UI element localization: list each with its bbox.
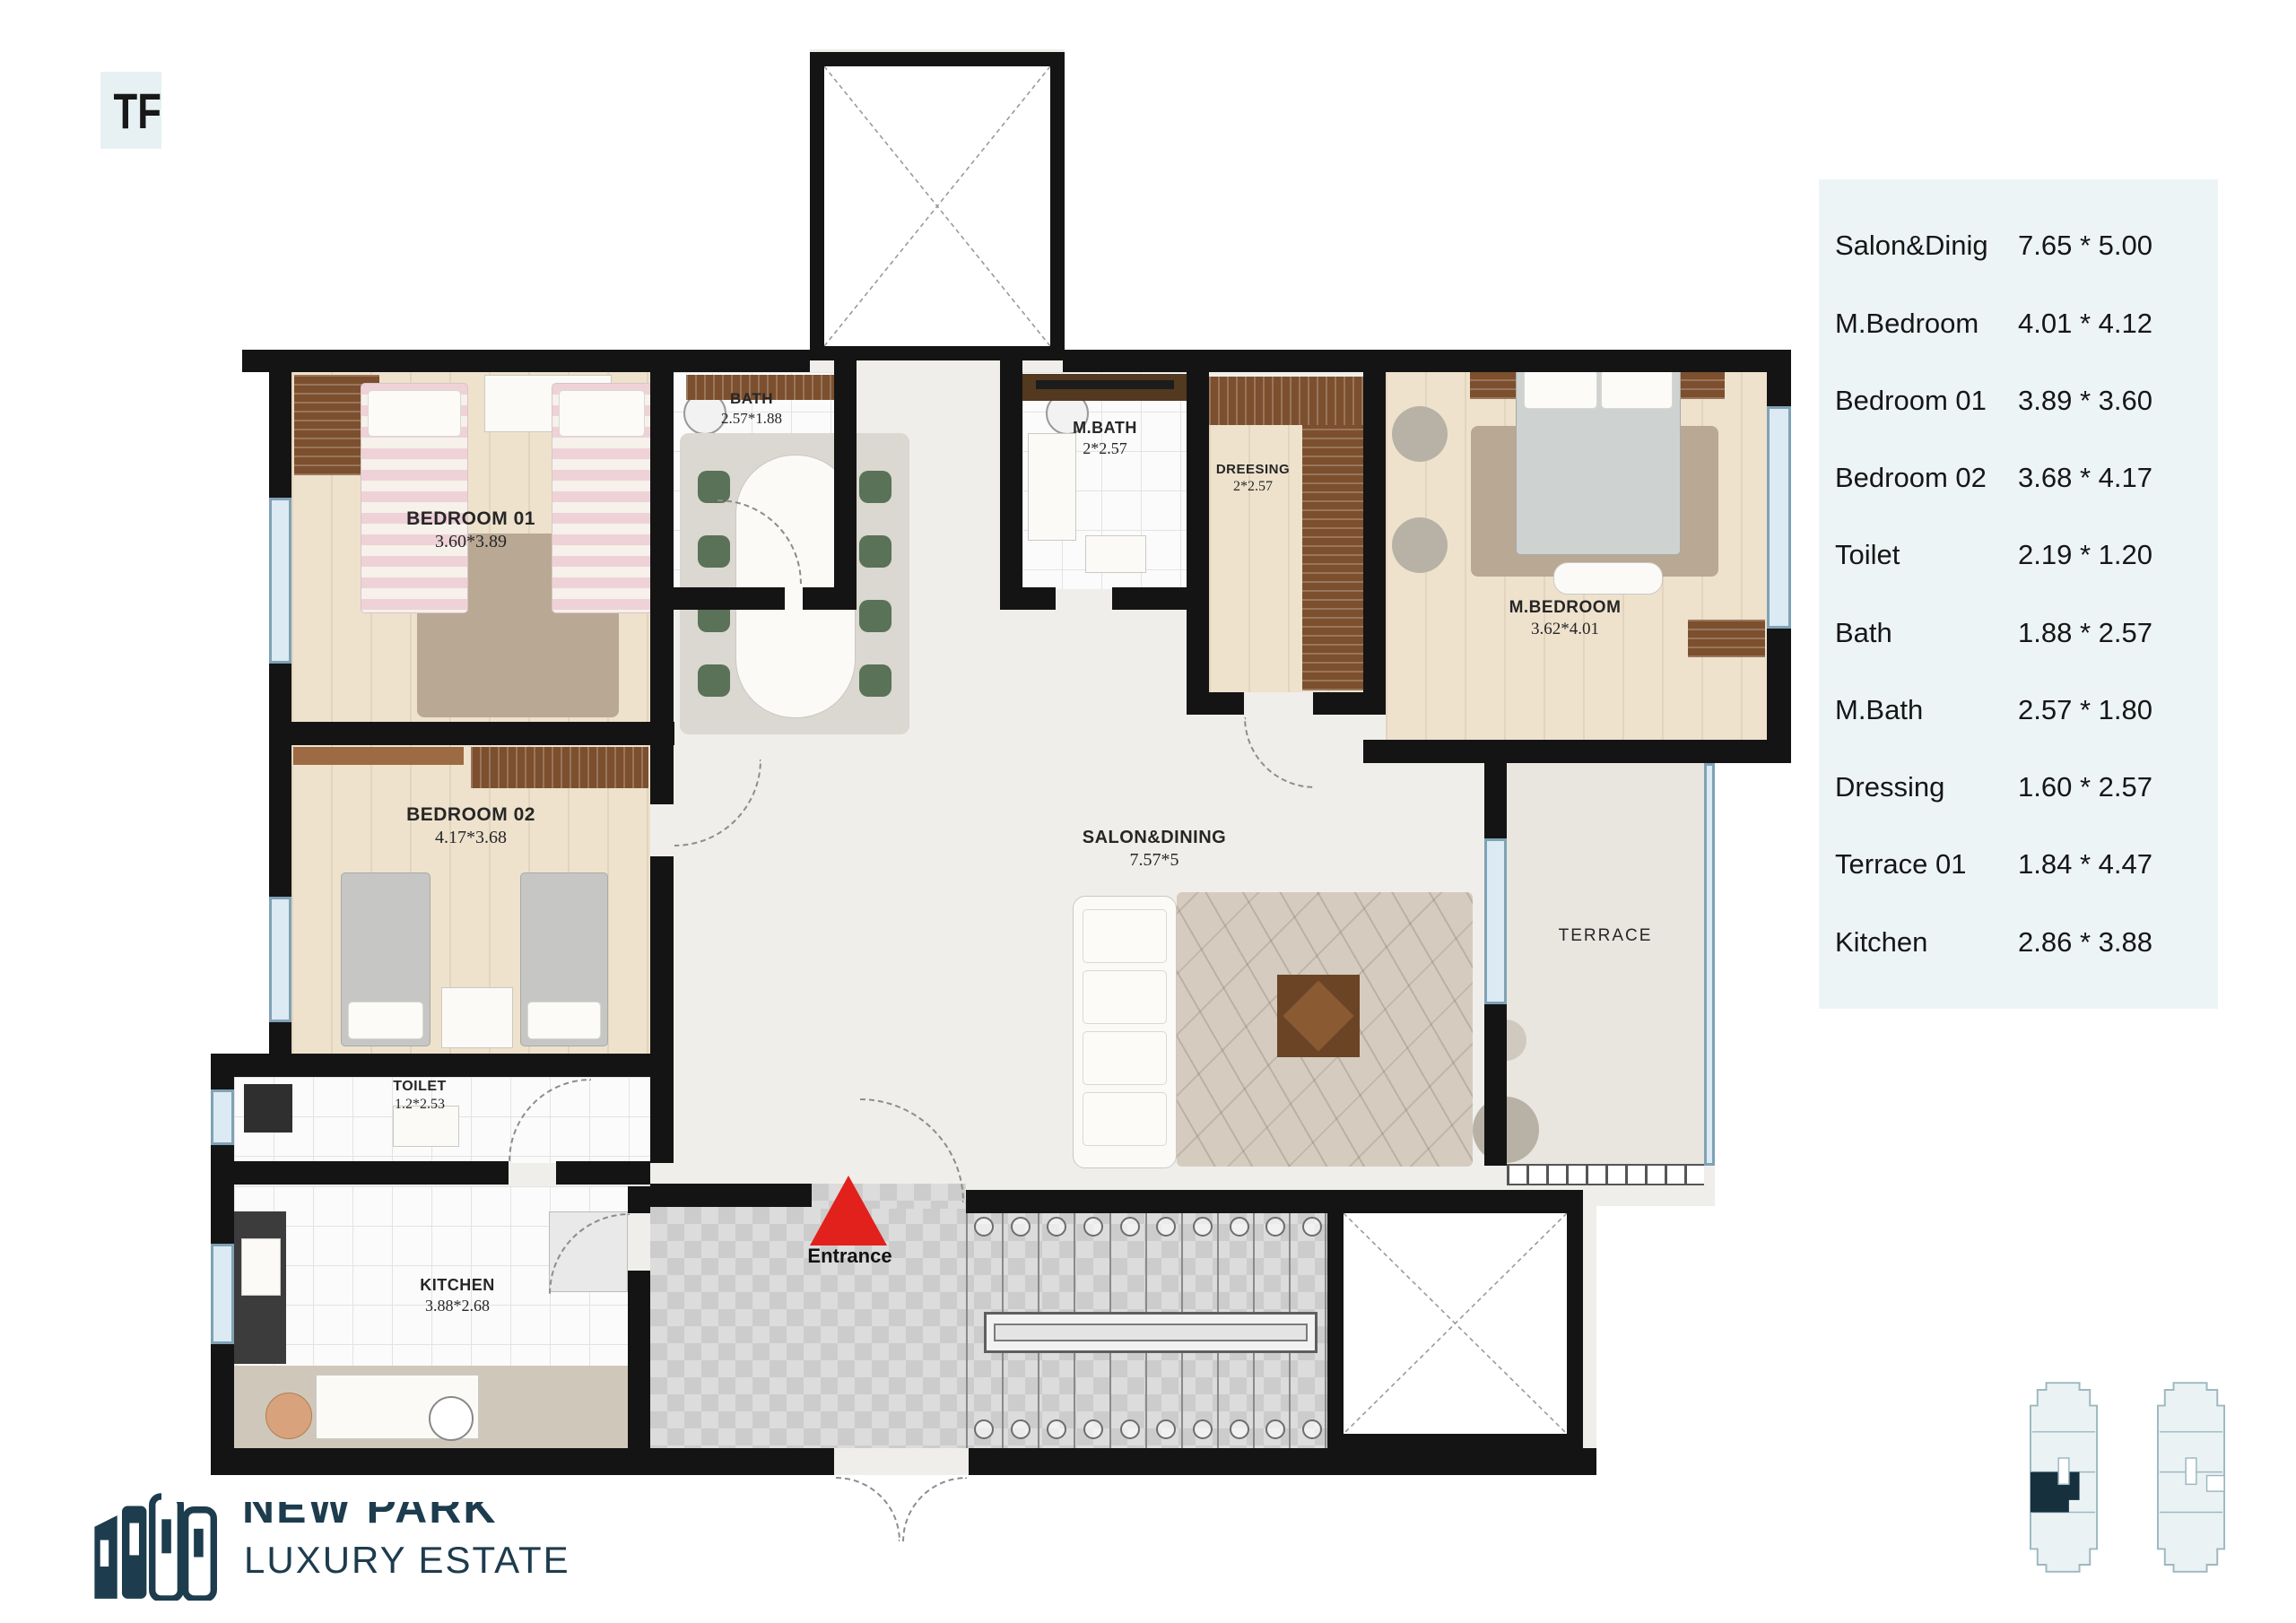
wall [211,1161,509,1185]
step-dot [1156,1217,1176,1237]
step-dot [1047,1217,1066,1237]
entrance-arrow-icon [810,1176,887,1245]
bed-pillow [1601,369,1673,409]
elevator-shaft [1327,1197,1583,1450]
step-dot [1083,1217,1103,1237]
room-name: TOILET [339,1079,500,1095]
room-name: BEDROOM 01 [336,508,605,530]
room-label-mbedroom: M.BEDROOM 3.62*4.01 [1466,598,1664,639]
bed [361,383,468,613]
dimension-row: Dressing1.60 * 2.57 [1819,771,2218,803]
room-size: 7.57*5 [1047,850,1262,871]
room-terrace-floor [1507,763,1704,1166]
dim-label: Bedroom 01 [1835,385,2018,417]
window [1704,763,1715,1166]
step-dot [974,1419,994,1439]
tv [1036,380,1174,389]
dim-value: 4.01 * 4.12 [2018,308,2202,340]
step-dot [1120,1217,1140,1237]
exterior-area [1596,1206,1803,1475]
dimension-row: Salon&Dinig7.65 * 5.00 [1819,230,2218,262]
dimension-row: Bedroom 023.68 * 4.17 [1819,462,2218,494]
step-dot [1120,1419,1140,1439]
armchair [1392,406,1448,462]
dining-chair [698,664,730,697]
dimension-row: M.Bath2.57 * 1.80 [1819,694,2218,726]
dimension-row: Bedroom 013.89 * 3.60 [1819,385,2218,417]
dim-label: Toilet [1835,539,2018,571]
wall [242,350,810,372]
step-dot [1011,1419,1031,1439]
sideboard [293,747,464,765]
dining-chair [859,535,891,568]
bed-pillow [368,390,461,437]
window [1767,406,1791,629]
room-size: 4.17*3.68 [368,828,574,848]
wall [650,722,674,804]
plate [429,1396,474,1441]
wall [1187,350,1209,715]
dining-chair [859,600,891,632]
sink [1085,535,1146,573]
wardrobe [471,747,648,788]
window [269,498,291,664]
step-dot [1265,1217,1285,1237]
exterior-area [161,1054,211,1502]
bench [1553,562,1663,595]
elevator-shaft [810,52,1065,360]
room-name: M.BEDROOM [1466,598,1664,618]
wall [211,1448,834,1475]
room-label-bedroom02: BEDROOM 02 4.17*3.68 [368,804,574,848]
room-label-kitchen: KITCHEN 3.88*2.68 [372,1276,543,1315]
dim-value: 1.88 * 2.57 [2018,617,2202,649]
keyplan-highlighted-icon [2029,1381,2099,1574]
room-label-bedroom01: BEDROOM 01 3.60*3.89 [336,508,605,552]
room-name: BEDROOM 02 [368,804,574,826]
room-name: DREESING [1205,462,1300,477]
sofa-cushion [1083,1031,1167,1085]
wall [211,1054,670,1077]
keyplan-icon [2156,1381,2226,1574]
dim-value: 1.60 * 2.57 [2018,771,2202,803]
wardrobe [1209,377,1363,425]
dimension-row: Toilet2.19 * 1.20 [1819,539,2218,571]
bed [341,872,430,1046]
wall [1063,350,1791,372]
wall [803,587,857,610]
room-size: 2*2.57 [1024,439,1186,458]
dim-label: Dressing [1835,771,2018,803]
dim-value: 3.89 * 3.60 [2018,385,2202,417]
stair-step-numbers [969,1419,1327,1443]
nightstand [441,987,513,1048]
room-label-mbath: M.BATH 2*2.57 [1024,419,1186,458]
dimension-row: Terrace 011.84 * 4.47 [1819,848,2218,881]
room-label-salon: SALON&DINING 7.57*5 [1047,828,1262,871]
terrace-glass-door [1484,838,1507,1004]
room-size: 2*2.57 [1205,479,1300,495]
wall [556,1161,650,1185]
bed [552,383,652,613]
room-size: 1.2*2.53 [339,1097,500,1113]
room-name: SALON&DINING [1047,828,1262,848]
elevator-x-icon [824,66,1050,346]
room-label-terrace: TERRACE [1516,926,1695,946]
room-label-bath: BATH 2.57*1.88 [671,390,832,428]
wall [1000,587,1056,610]
wall [650,856,674,1055]
room-label-toilet: TOILET 1.2*2.53 [339,1079,500,1113]
wall [834,354,857,589]
room-size: 3.62*4.01 [1466,620,1664,639]
door-arc [674,759,761,846]
room-name: BATH [671,390,832,408]
dimension-row: Kitchen2.86 * 3.88 [1819,926,2218,959]
dining-chair [698,471,730,503]
wall [650,587,785,610]
wall [628,1271,650,1448]
dim-label: Terrace 01 [1835,848,2018,881]
step-dot [974,1217,994,1237]
tray [265,1393,312,1439]
bed-pillow [1524,369,1597,409]
room-size: 3.88*2.68 [372,1297,543,1315]
room-name: TERRACE [1516,926,1695,946]
dim-value: 3.68 * 4.17 [2018,462,2202,494]
dim-value: 2.19 * 1.20 [2018,539,2202,571]
sofa [1073,896,1177,1168]
stair-step-numbers [969,1217,1327,1240]
elevator-x-icon [1344,1213,1567,1434]
step-dot [1302,1419,1322,1439]
terrace-railing [1507,1164,1704,1185]
step-dot [1047,1419,1066,1439]
wall [650,1054,674,1163]
door-arc [1244,717,1315,788]
wall [650,1184,812,1207]
sofa-cushion [1083,909,1167,963]
dim-label: Bedroom 02 [1835,462,2018,494]
dim-value: 2.86 * 3.88 [2018,926,2202,959]
bed [520,872,608,1046]
dining-chair [859,471,891,503]
desk [1688,620,1765,657]
room-label-dressing: DREESING 2*2.57 [1205,462,1300,495]
step-dot [1265,1419,1285,1439]
washing-machine [244,1084,292,1133]
wall [969,1448,1596,1475]
coffee-table [1277,975,1360,1057]
bed-pillow [559,390,645,437]
wall [1187,692,1244,715]
dimension-row: M.Bedroom4.01 * 4.12 [1819,308,2218,340]
dim-value: 7.65 * 5.00 [2018,230,2202,262]
exterior-area [161,49,810,350]
dim-label: M.Bedroom [1835,308,2018,340]
wall [1363,740,1791,763]
dim-value: 2.57 * 1.80 [2018,694,2202,726]
dim-label: M.Bath [1835,694,2018,726]
dim-label: Salon&Dinig [1835,230,2018,262]
sofa-cushion [1083,1092,1167,1146]
floorplan-poster: TF 02 - 1,2,3,4,5 186 M Salon&Dinig7.65 … [0,0,2296,1623]
window [211,1089,234,1145]
room-size: 3.60*3.89 [336,532,605,552]
dim-label: Bath [1835,617,2018,649]
double-bed [1516,363,1681,555]
bed-pillow [348,1002,423,1039]
room-size: 2.57*1.88 [671,410,832,428]
coffee-table-top [1283,980,1353,1051]
kitchen-sink [241,1238,281,1296]
sofa-cushion [1083,970,1167,1024]
step-dot [1193,1419,1213,1439]
dimension-row: Bath1.88 * 2.57 [1819,617,2218,649]
exterior-area [1065,49,1803,350]
step-dot [1156,1419,1176,1439]
wall [1363,350,1386,715]
wall [1000,354,1022,589]
exterior-area [161,1475,1803,1502]
wall [628,1186,650,1213]
dining-chair [859,664,891,697]
wall [269,722,674,745]
dim-value: 1.84 * 4.47 [2018,848,2202,881]
step-dot [1230,1419,1249,1439]
window [269,897,291,1022]
step-dot [1011,1217,1031,1237]
step-dot [1302,1217,1322,1237]
dimensions-panel: Salon&Dinig7.65 * 5.00 M.Bedroom4.01 * 4… [1819,179,2218,1009]
handrail-core [994,1324,1308,1341]
armchair [1392,517,1448,573]
bed-pillow [527,1002,601,1039]
entrance-label: Entrance [794,1245,906,1268]
room-name: KITCHEN [372,1276,543,1295]
floor-plan: Entrance BEDROOM 01 3.60*3.89 BATH 2.57*… [161,49,1803,1502]
step-dot [1083,1419,1103,1439]
window [211,1244,234,1344]
dim-label: Kitchen [1835,926,2018,959]
room-name: M.BATH [1024,419,1186,438]
step-dot [1193,1217,1213,1237]
brand-tagline: LUXURY ESTATE [244,1539,570,1582]
exterior-area [161,350,269,1054]
step-dot [1230,1217,1249,1237]
wardrobe [1302,425,1363,690]
stair-handrail [984,1312,1318,1353]
